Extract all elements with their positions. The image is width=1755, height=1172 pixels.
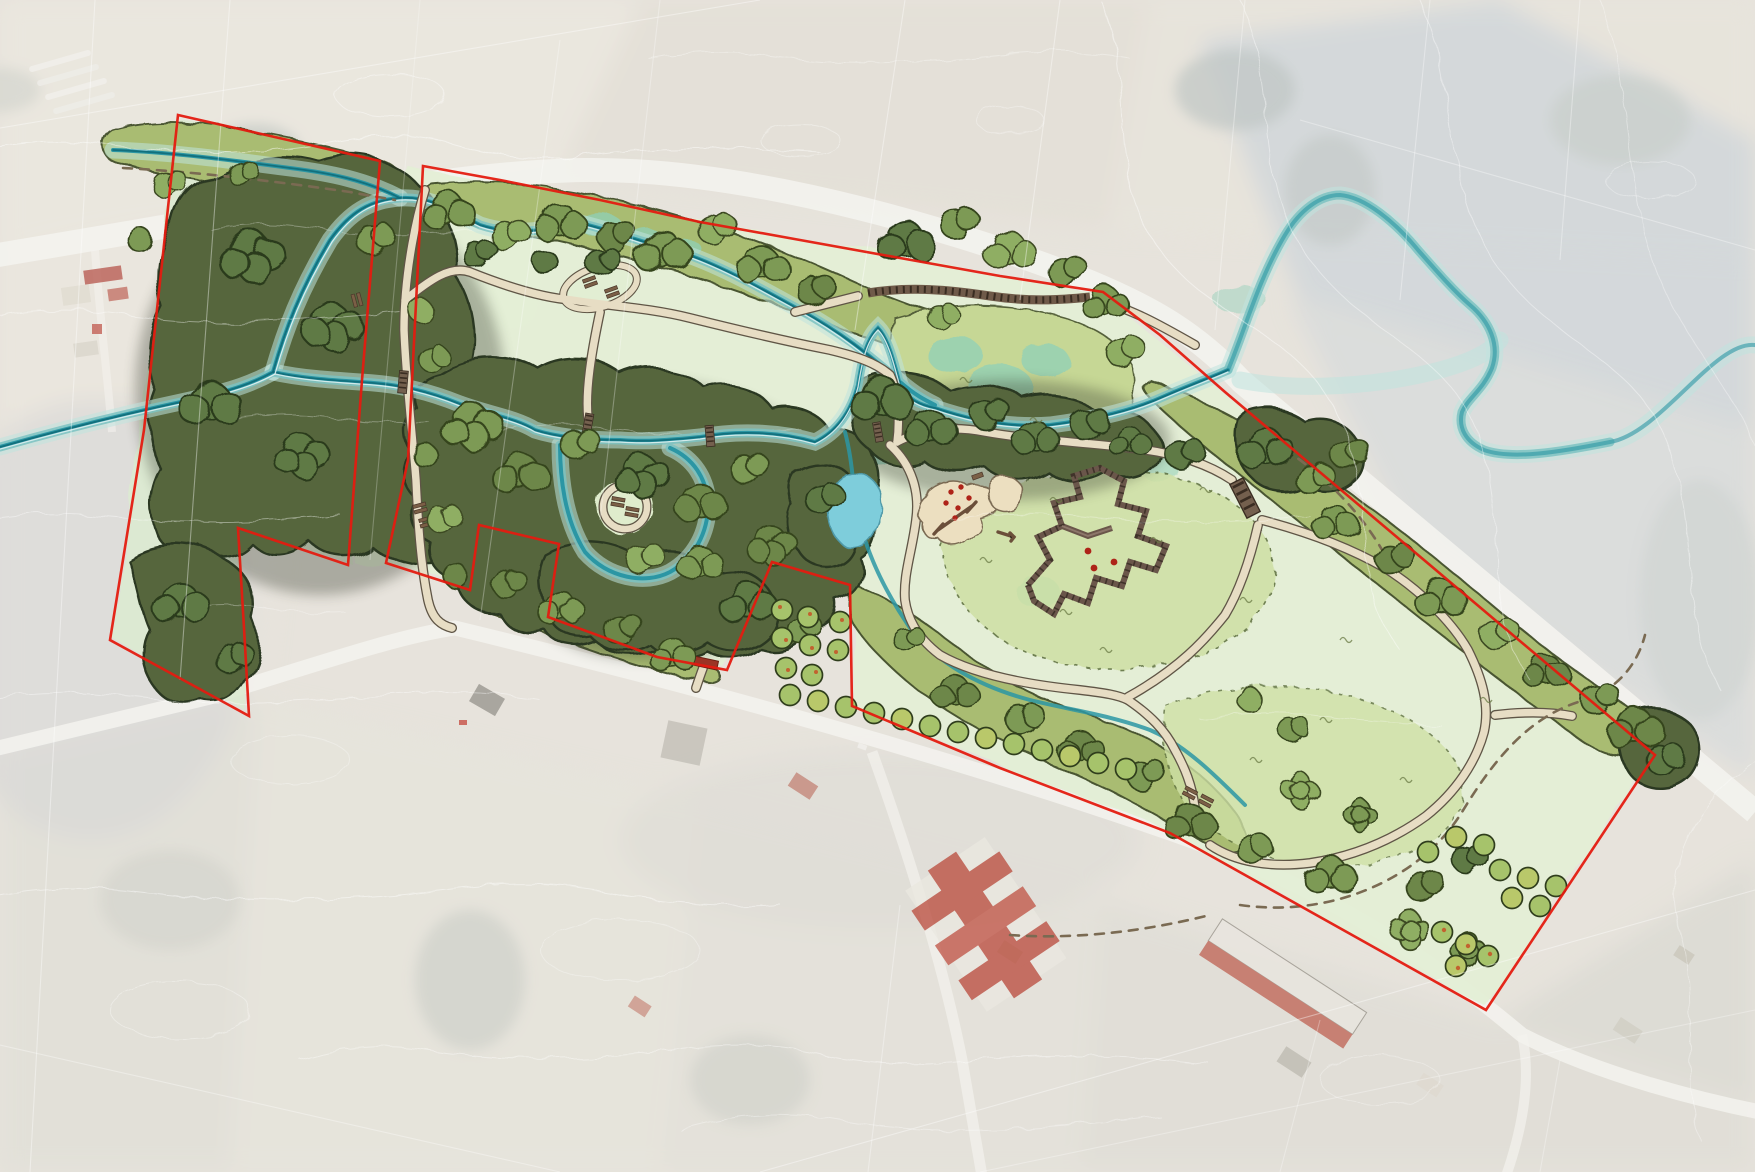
car [459,720,467,725]
garden-plots [660,720,707,765]
footbridge [398,370,409,393]
tree-cluster [408,298,432,322]
tree-cluster [413,443,437,467]
masterplan-canvas [0,0,1755,1172]
tree-cluster [128,228,152,252]
footbridge [705,425,715,447]
tree-cluster [1238,688,1262,712]
tree-cluster [533,250,557,274]
